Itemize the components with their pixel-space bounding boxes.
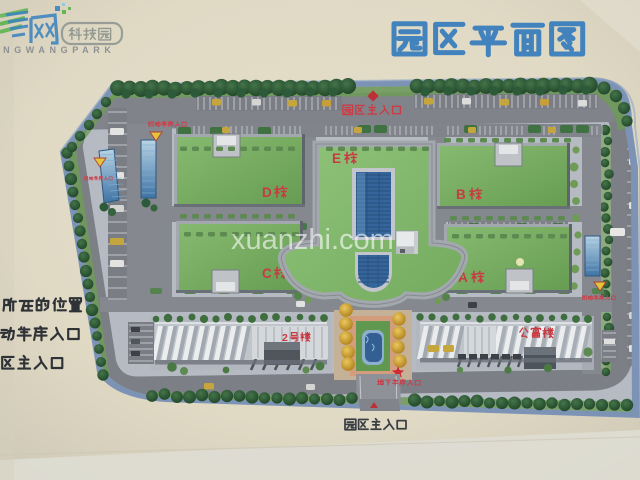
svg-text:xuanzhi.com: xuanzhi.com (231, 224, 394, 256)
